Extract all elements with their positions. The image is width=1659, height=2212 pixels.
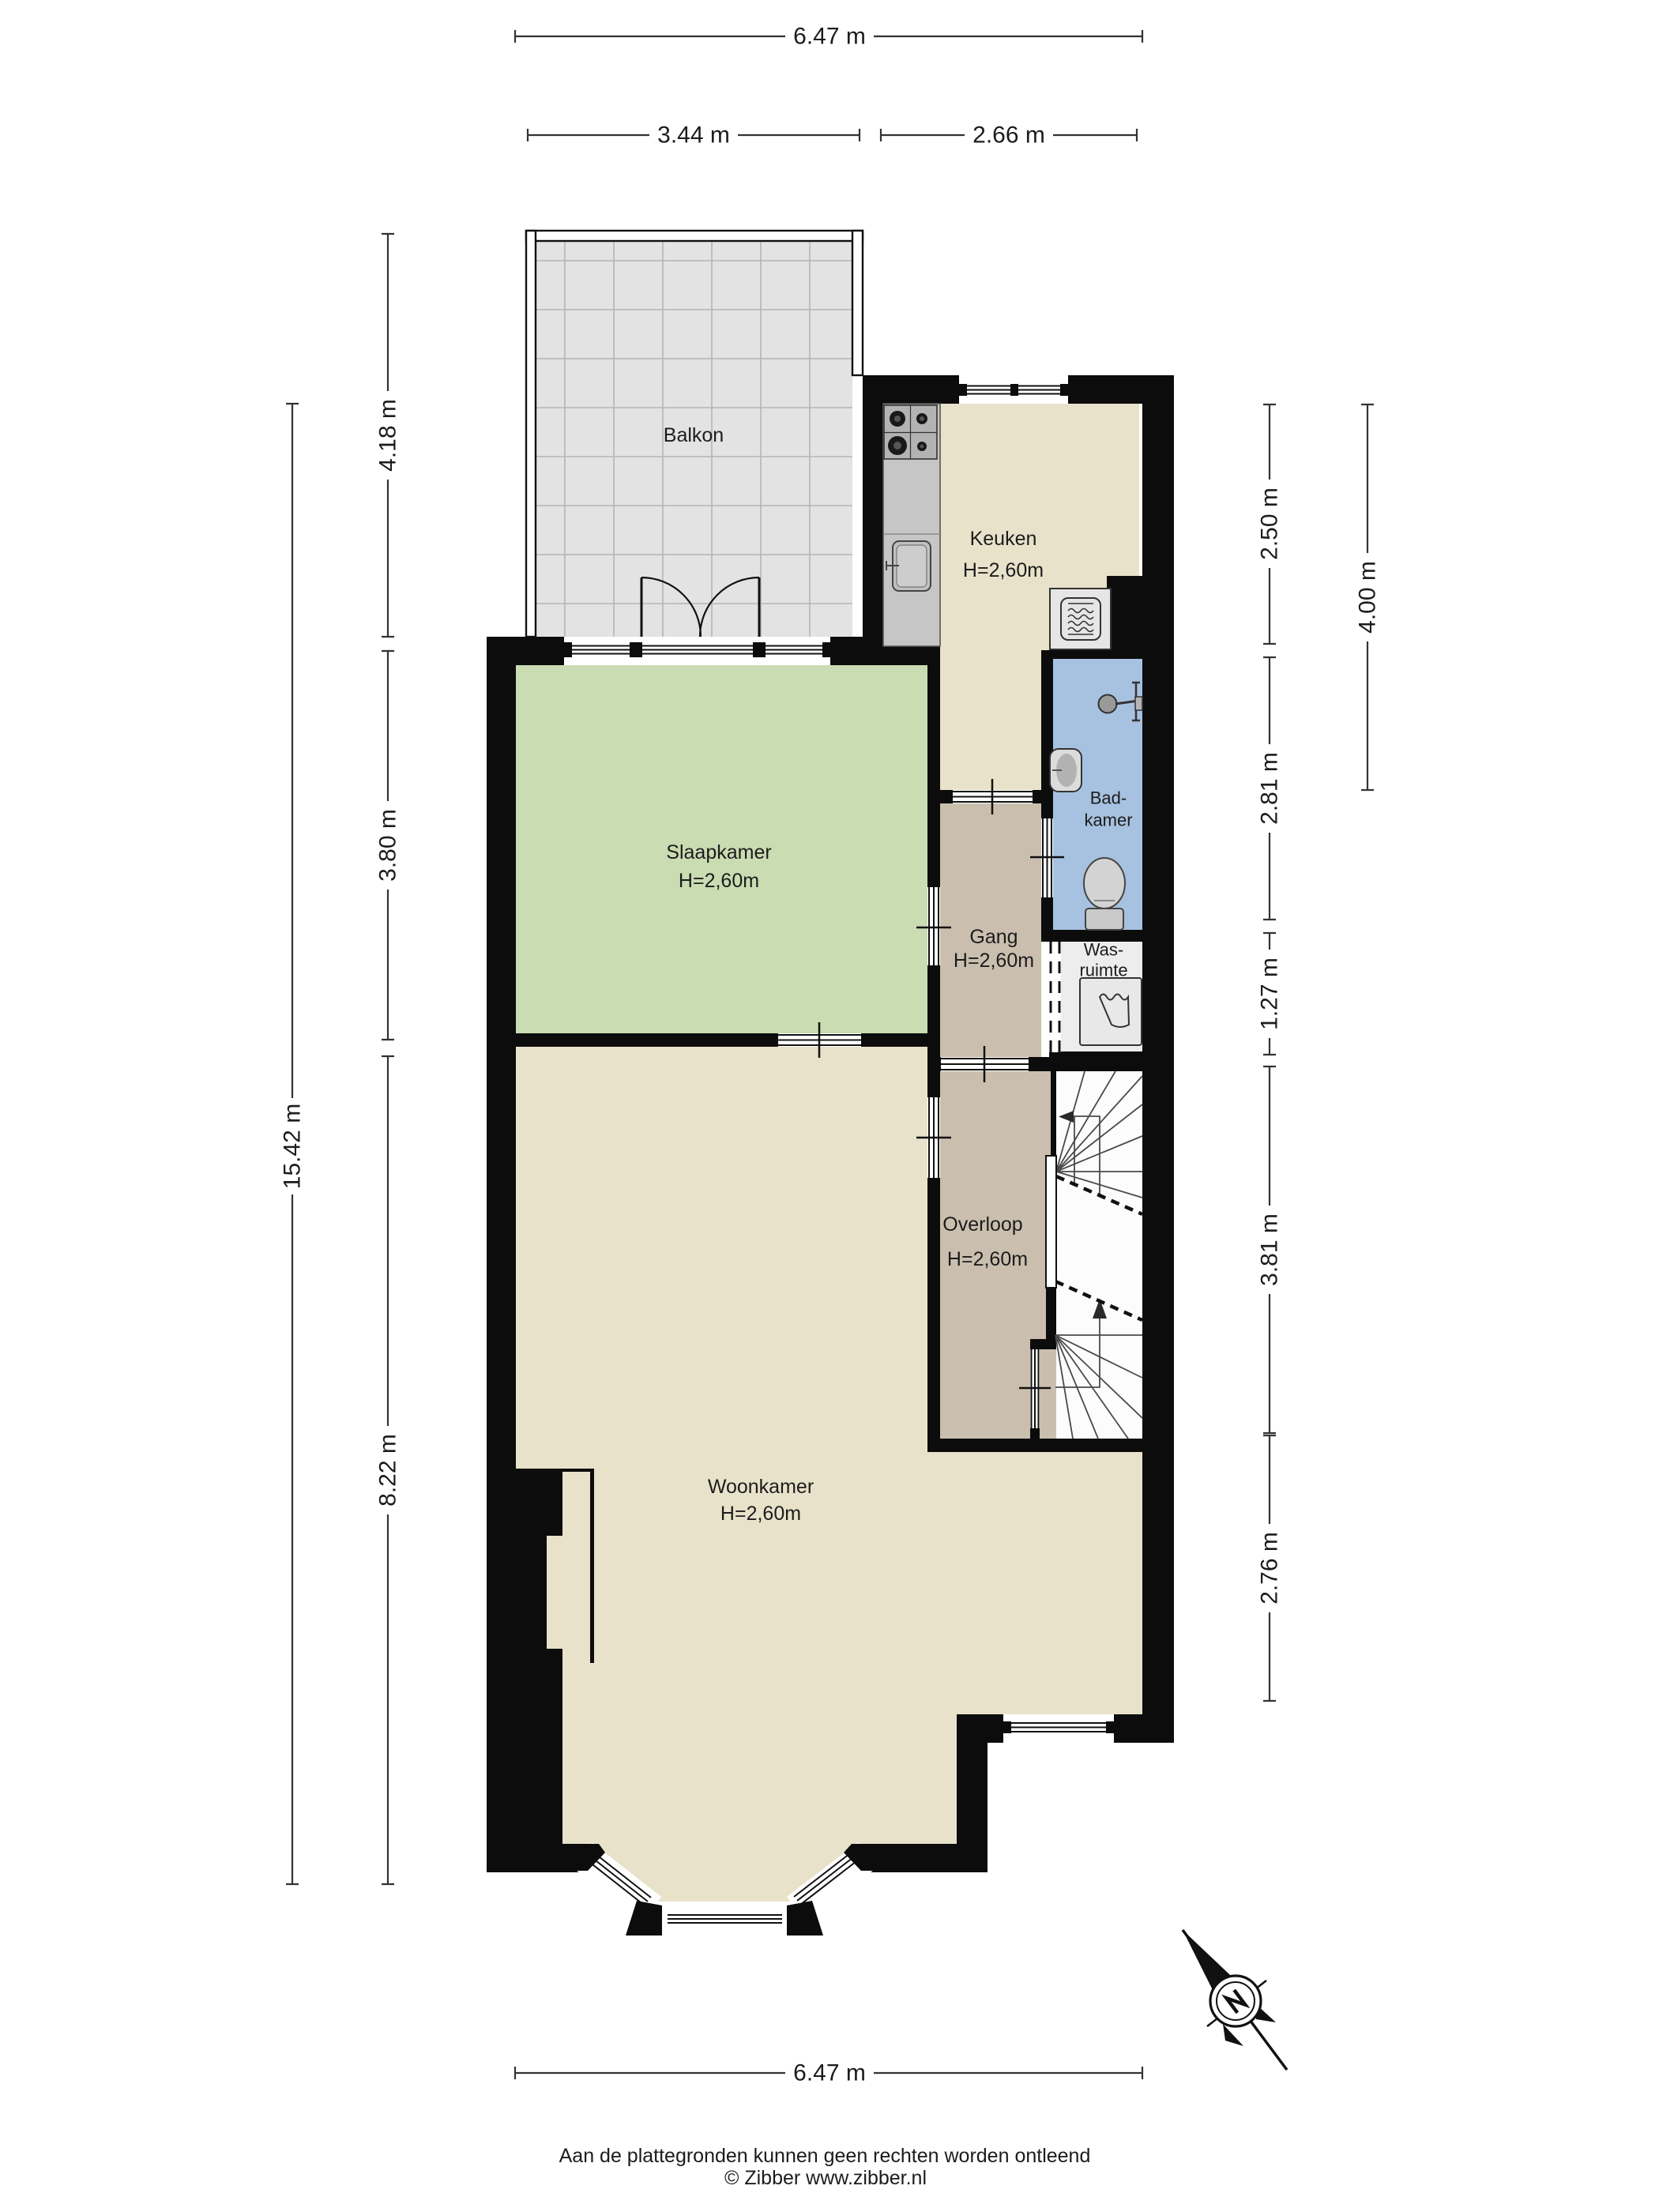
svg-text:H=2,60m: H=2,60m <box>720 1503 801 1525</box>
svg-text:H=2,60m: H=2,60m <box>963 559 1044 581</box>
svg-text:4.18 m: 4.18 m <box>375 399 401 472</box>
svg-text:Was-: Was- <box>1084 940 1124 960</box>
svg-text:Woonkamer: Woonkamer <box>708 1476 814 1498</box>
svg-text:8.22 m: 8.22 m <box>375 1434 401 1507</box>
svg-text:Gang: Gang <box>969 926 1018 948</box>
svg-text:3.81 m: 3.81 m <box>1257 1213 1283 1286</box>
svg-text:H=2,60m: H=2,60m <box>954 950 1034 972</box>
svg-text:15.42 m: 15.42 m <box>280 1104 306 1189</box>
svg-text:Bad-: Bad- <box>1090 788 1127 808</box>
svg-text:kamer: kamer <box>1084 811 1132 830</box>
svg-text:ruimte: ruimte <box>1079 961 1127 980</box>
svg-text:Balkon: Balkon <box>664 424 724 446</box>
svg-text:2.76 m: 2.76 m <box>1257 1532 1283 1604</box>
svg-text:H=2,60m: H=2,60m <box>947 1248 1028 1270</box>
svg-text:4.00 m: 4.00 m <box>1355 561 1381 634</box>
svg-text:Aan de plattegronden kunnen ge: Aan de plattegronden kunnen geen rechten… <box>559 2145 1091 2167</box>
svg-text:1.27 m: 1.27 m <box>1257 957 1283 1030</box>
svg-text:Keuken: Keuken <box>970 528 1037 550</box>
svg-text:3.44 m: 3.44 m <box>657 122 730 149</box>
svg-text:6.47 m: 6.47 m <box>793 2060 866 2086</box>
svg-text:2.81 m: 2.81 m <box>1257 752 1283 825</box>
svg-text:2.50 m: 2.50 m <box>1257 487 1283 560</box>
svg-text:Overloop: Overloop <box>942 1213 1022 1236</box>
svg-text:Slaapkamer: Slaapkamer <box>666 841 771 863</box>
svg-text:© Zibber www.zibber.nl: © Zibber www.zibber.nl <box>724 2167 927 2189</box>
svg-text:2.66 m: 2.66 m <box>972 122 1045 149</box>
svg-text:H=2,60m: H=2,60m <box>679 870 759 892</box>
svg-text:6.47 m: 6.47 m <box>793 24 866 50</box>
svg-text:3.80 m: 3.80 m <box>375 809 401 882</box>
